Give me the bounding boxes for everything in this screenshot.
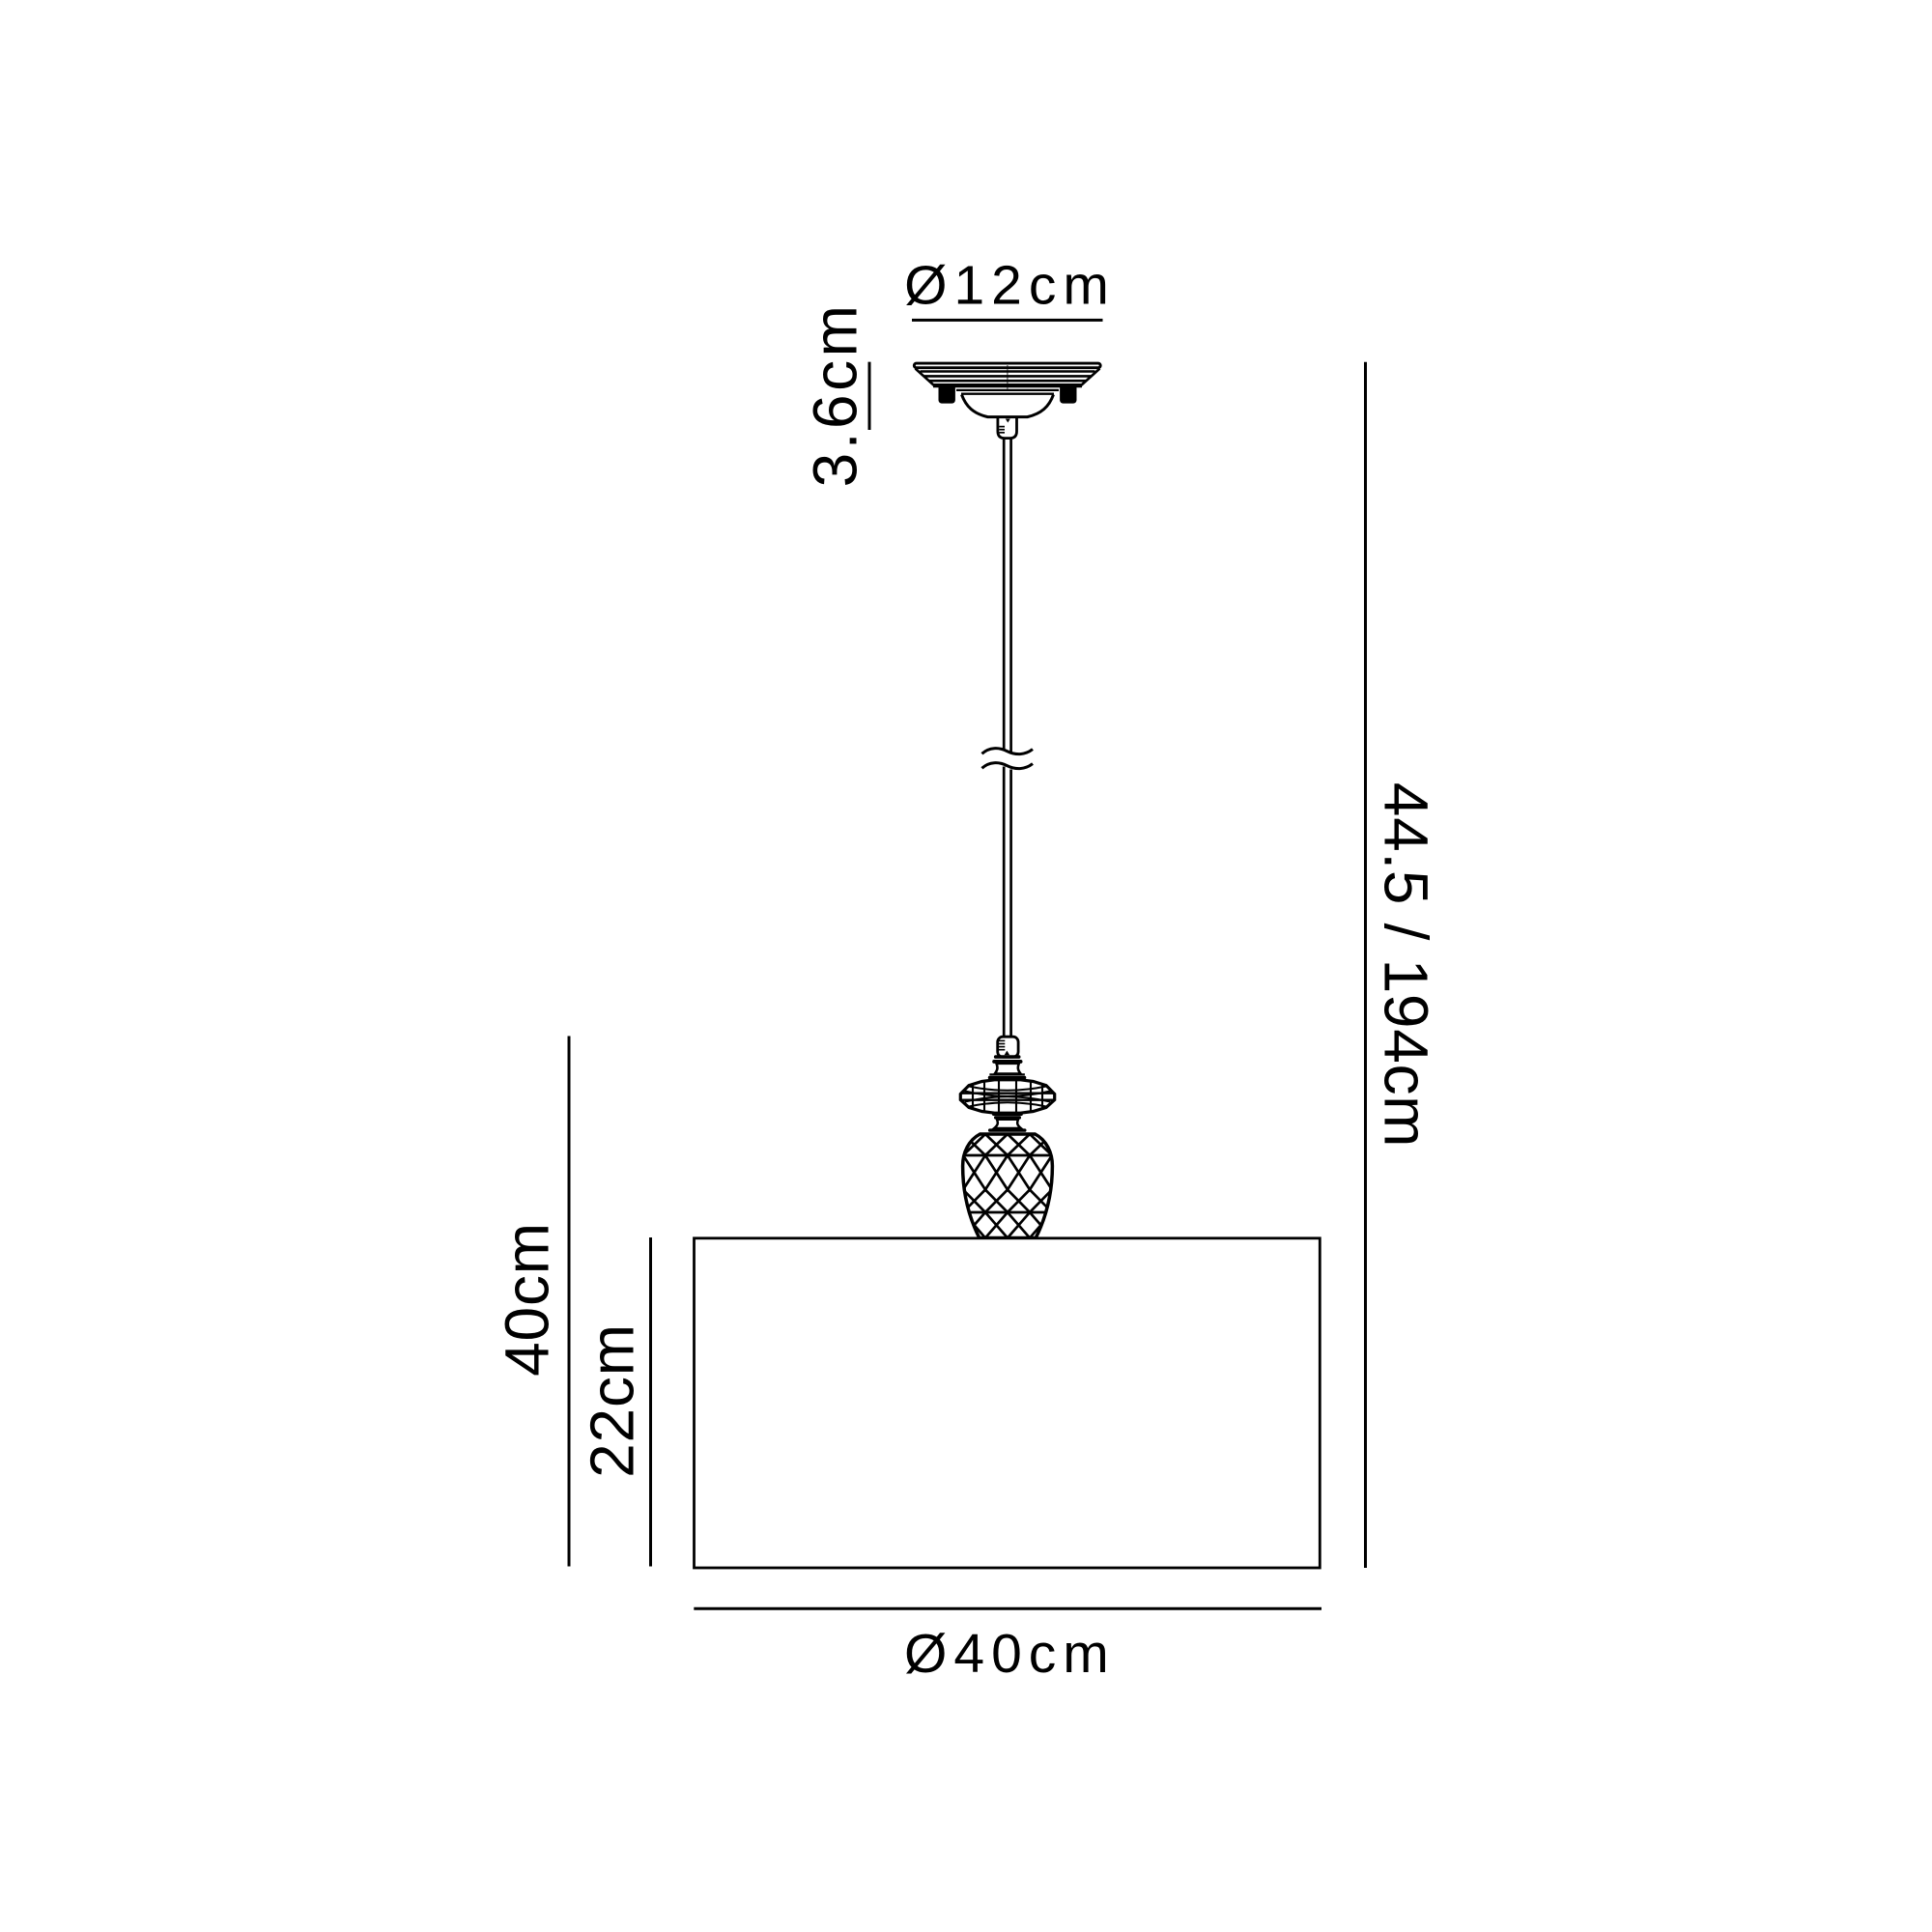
svg-text:40cm: 40cm (493, 1222, 562, 1377)
svg-text:Ø12cm: Ø12cm (904, 255, 1116, 317)
svg-text:22cm: 22cm (578, 1323, 647, 1478)
svg-text:Ø40cm: Ø40cm (904, 1623, 1116, 1685)
svg-text:3.6cm: 3.6cm (801, 302, 870, 488)
svg-text:44.5 / 194cm: 44.5 / 194cm (1372, 782, 1441, 1148)
